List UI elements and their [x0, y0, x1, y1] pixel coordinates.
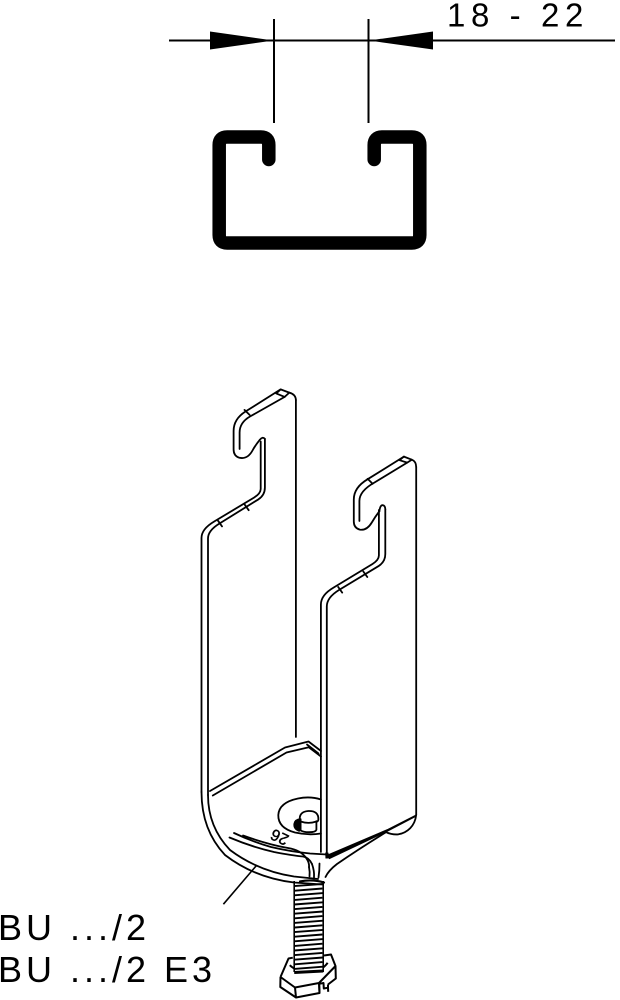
svg-text:18 - 22: 18 - 22: [447, 0, 589, 34]
